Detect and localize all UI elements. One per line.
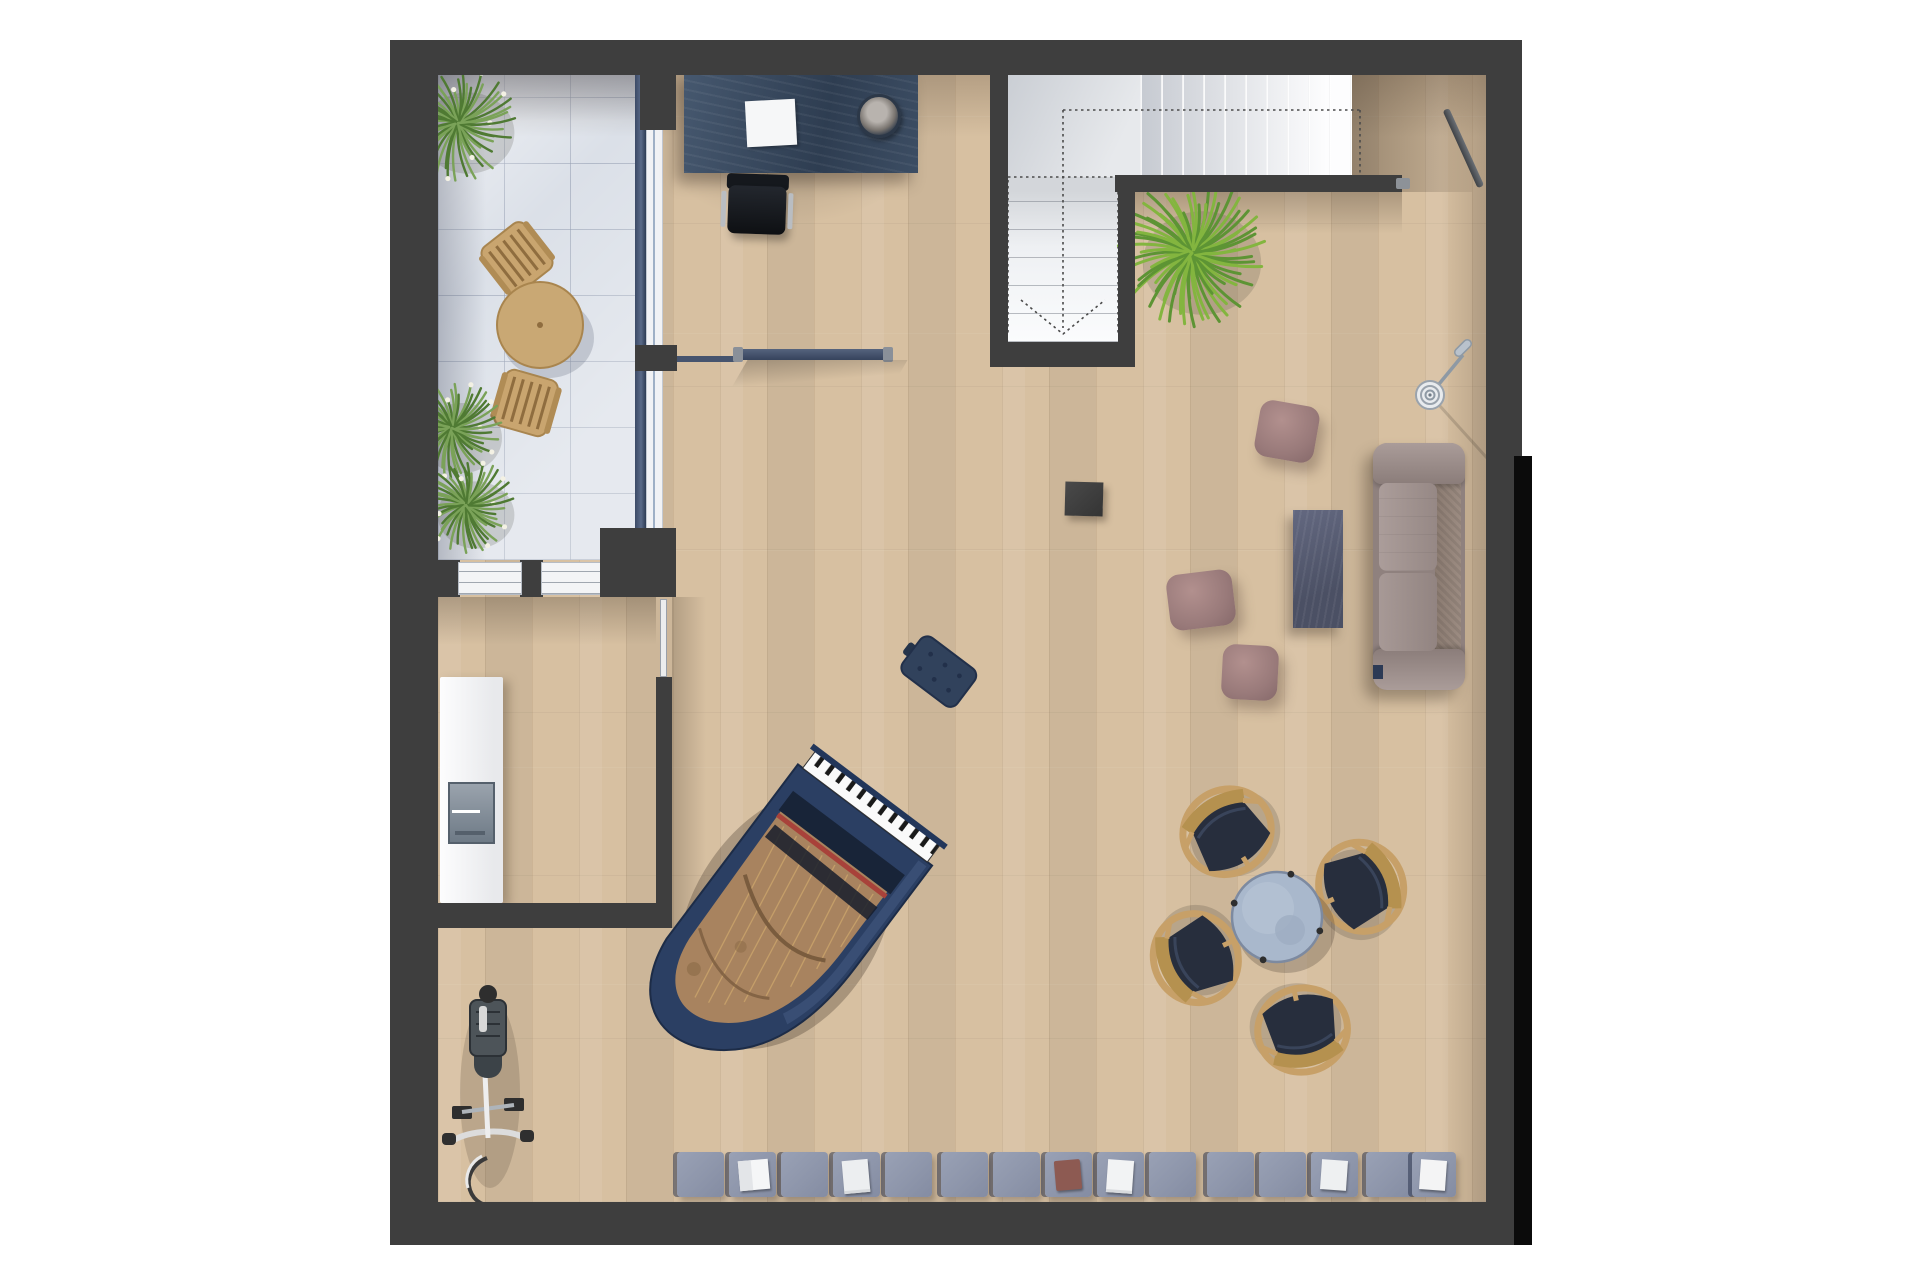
window-sill — [458, 562, 522, 595]
paper — [841, 1159, 870, 1194]
floor-cushion — [1259, 1152, 1306, 1197]
utility-wall-partition — [656, 677, 672, 928]
utility-wall-bottom — [438, 903, 672, 928]
open-book — [737, 1159, 770, 1192]
glazing-pier — [635, 345, 677, 371]
book — [1419, 1159, 1447, 1191]
floor-cushion — [1207, 1152, 1254, 1197]
floor-cushion — [941, 1152, 988, 1197]
wall-left — [390, 40, 438, 1245]
bicycle — [442, 985, 534, 1205]
entry-door-latch — [1396, 178, 1410, 189]
window-wall-segment — [520, 560, 543, 597]
red-book — [1053, 1159, 1082, 1191]
wall-top — [390, 40, 1522, 75]
floor-cushion — [1366, 1152, 1413, 1197]
floor-cushion — [677, 1152, 724, 1197]
window-sill — [541, 562, 602, 595]
wall-under-stairs — [1115, 175, 1402, 192]
wall-bottom — [390, 1202, 1522, 1245]
glazing-block-top — [640, 40, 676, 130]
wall-right-shadow-strip — [1514, 456, 1532, 1245]
dining-set — [1136, 769, 1421, 1082]
terrace-dining-set — [475, 216, 594, 439]
floor-cushion — [885, 1152, 932, 1197]
floor-cushion — [781, 1152, 828, 1197]
floor-plan-render — [0, 0, 1920, 1280]
floor-cushion — [1149, 1152, 1196, 1197]
decor-layer — [0, 0, 1920, 1280]
window-wall-segment — [438, 560, 460, 597]
dining-chair — [1242, 974, 1356, 1082]
stairwell-wall-left — [990, 75, 1008, 367]
piano-bench — [892, 629, 980, 711]
glazing-block-bottom — [600, 528, 676, 597]
stairwell-wall-bottom — [990, 342, 1135, 367]
paper-stack — [1105, 1159, 1133, 1194]
yucca-plant — [1118, 181, 1264, 327]
magazine — [1319, 1159, 1347, 1191]
floor-lamp — [1416, 338, 1496, 468]
floor-cushion — [993, 1152, 1040, 1197]
stairwell-wall-right — [1118, 177, 1135, 367]
